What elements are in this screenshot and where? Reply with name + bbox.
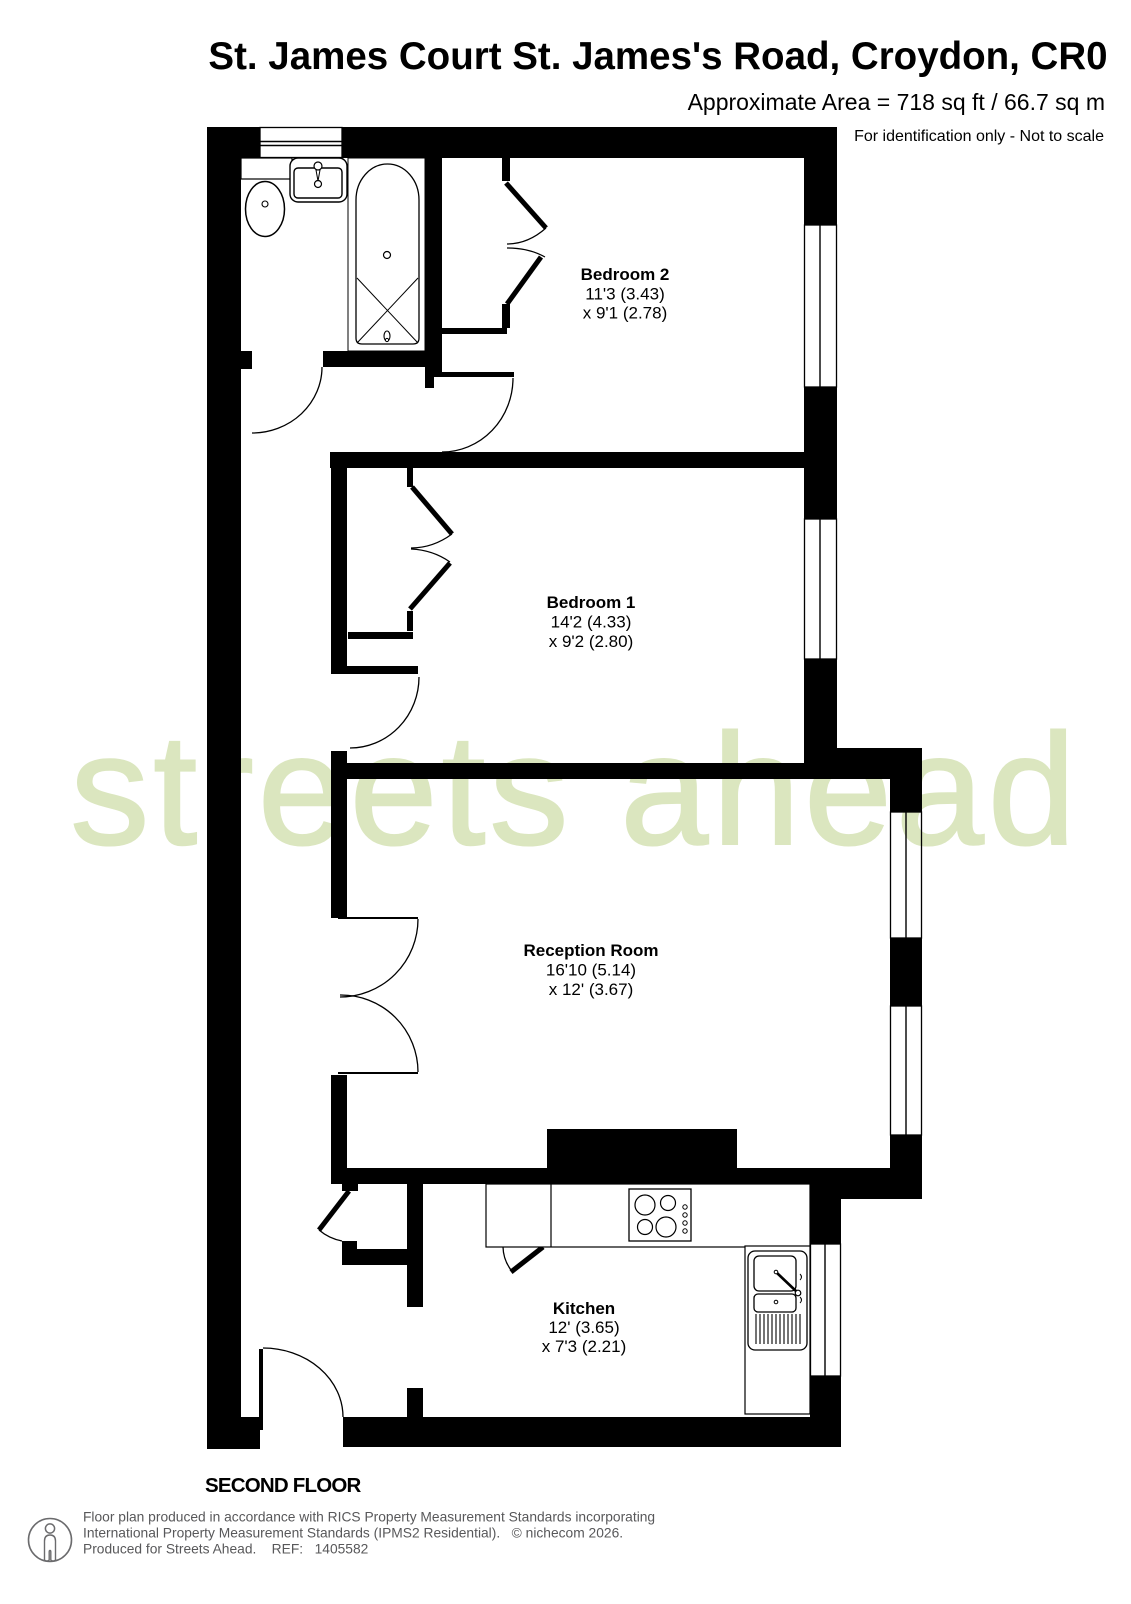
svg-text:streets ahead: streets ahead: [70, 702, 1079, 878]
svg-text:12' (3.65): 12' (3.65): [548, 1318, 619, 1337]
svg-text:11'3 (3.43): 11'3 (3.43): [585, 285, 664, 304]
svg-text:For identification only - Not: For identification only - Not to scale: [854, 128, 1104, 145]
svg-text:Approximate Area = 718 sq ft /: Approximate Area = 718 sq ft / 66.7 sq m: [688, 89, 1105, 115]
svg-text:x 9'2 (2.80): x 9'2 (2.80): [549, 632, 634, 651]
svg-text:x 9'1 (2.78): x 9'1 (2.78): [583, 304, 668, 323]
svg-text:Floor plan produced in accorda: Floor plan produced in accordance with R…: [83, 1510, 655, 1525]
svg-text:International Property Measure: International Property Measurement Stand…: [83, 1526, 623, 1541]
svg-text:16'10 (5.14): 16'10 (5.14): [546, 961, 636, 980]
svg-text:Reception Room: Reception Room: [523, 941, 658, 960]
svg-text:x 7'3 (2.21): x 7'3 (2.21): [542, 1337, 627, 1356]
svg-text:St. James Court St. James's Ro: St. James Court St. James's Road, Croydo…: [208, 35, 1107, 78]
svg-text:x 12' (3.67): x 12' (3.67): [549, 980, 634, 999]
svg-text:Bedroom 2: Bedroom 2: [581, 265, 670, 284]
svg-text:14'2 (4.33): 14'2 (4.33): [551, 613, 632, 632]
svg-text:Bedroom 1: Bedroom 1: [547, 593, 636, 612]
svg-text:Produced for Streets Ahead.: Produced for Streets Ahead. REF: 1405582: [83, 1542, 368, 1557]
svg-text:SECOND FLOOR: SECOND FLOOR: [205, 1474, 362, 1497]
svg-text:Kitchen: Kitchen: [553, 1299, 615, 1318]
